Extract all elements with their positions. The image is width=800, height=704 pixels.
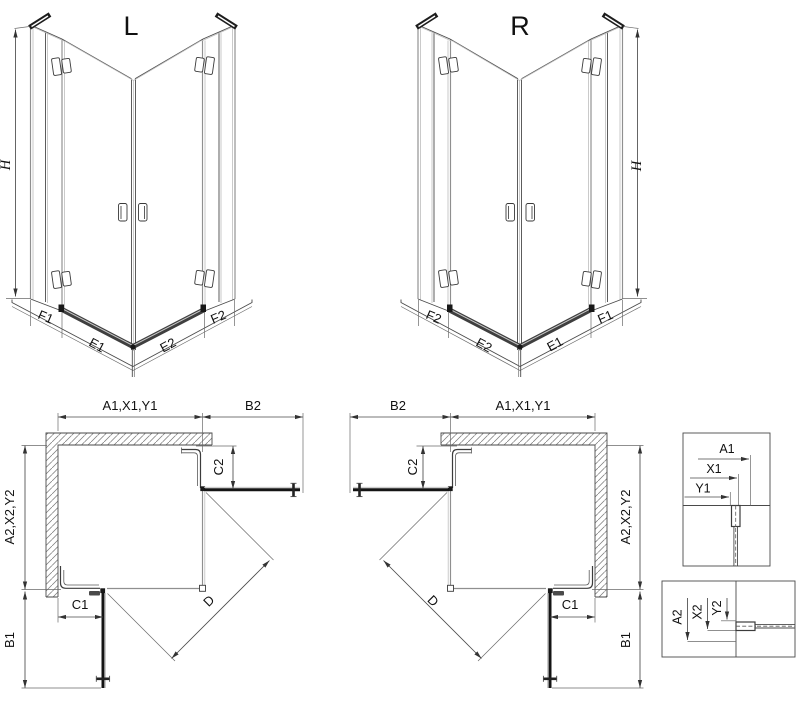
dim-label-x1: X1 xyxy=(706,462,721,476)
dim-label-b2: B2 xyxy=(390,398,406,413)
wall-hatch-top xyxy=(441,433,607,445)
dim-label-c1: C1 xyxy=(562,597,579,612)
dim-label-a2x2y2: A2,X2,Y2 xyxy=(618,490,633,545)
front-view-right: R H F2 E2 E1 F1 xyxy=(401,11,647,377)
dim-label-c1: C1 xyxy=(72,597,89,612)
wall-hatch-right xyxy=(595,445,607,597)
view-title-right: R xyxy=(510,11,530,41)
dim-label-x2: X2 xyxy=(691,604,705,619)
dim-label-a1: A1 xyxy=(719,442,734,456)
dim-label-b2: B2 xyxy=(245,398,261,413)
dim-label-e1: E1 xyxy=(87,335,108,356)
dim-label-b1: B1 xyxy=(2,632,17,648)
dim-label-d: D xyxy=(425,592,442,609)
plan-view-left: A1,X1,Y1 B2 C2 A2,X2,Y2 B1 C1 D xyxy=(2,398,303,688)
plan-left-dimensions xyxy=(22,413,304,688)
dim-label-height-left: H xyxy=(0,158,14,171)
dim-label-c2: C2 xyxy=(211,459,226,476)
dim-label-y2: Y2 xyxy=(710,600,724,615)
drawing-canvas: L H F1 E1 E2 F2 R H F2 E2 E1 F1 xyxy=(0,0,800,704)
shower-enclosure-technical-drawing: L H F1 E1 E2 F2 R H F2 E2 E1 F1 xyxy=(0,0,800,704)
dim-label-d: D xyxy=(200,592,217,609)
dim-label-f2: F2 xyxy=(208,307,228,327)
dim-label-y1: Y1 xyxy=(695,482,710,496)
wall-hatch-top xyxy=(46,433,212,445)
dim-label-e1: E1 xyxy=(544,334,565,355)
dim-label-a2x2y2: A2,X2,Y2 xyxy=(2,490,17,545)
dim-label-f1: F1 xyxy=(595,307,615,327)
dim-label-b1: B1 xyxy=(618,632,633,648)
plan-view-right: A1,X1,Y1 B2 C2 A2,X2,Y2 B1 C1 D xyxy=(350,398,644,688)
front-view-left: L H F1 E1 E2 F2 xyxy=(0,11,252,377)
detail-view-top-profile: A1 X1 Y1 xyxy=(683,433,770,566)
dim-label-height-right: H xyxy=(629,159,645,172)
wall-hatch-left xyxy=(46,445,58,597)
detail-view-bottom-profile: A2 X2 Y2 xyxy=(662,581,795,657)
dim-label-e2: E2 xyxy=(157,335,178,356)
dim-label-c2: C2 xyxy=(405,459,420,476)
dim-label-a2: A2 xyxy=(671,609,685,624)
dim-label-e2: E2 xyxy=(474,335,495,356)
dim-label-a1x1y1: A1,X1,Y1 xyxy=(103,398,158,413)
view-title-left: L xyxy=(123,11,138,41)
dim-label-a1x1y1: A1,X1,Y1 xyxy=(496,398,551,413)
